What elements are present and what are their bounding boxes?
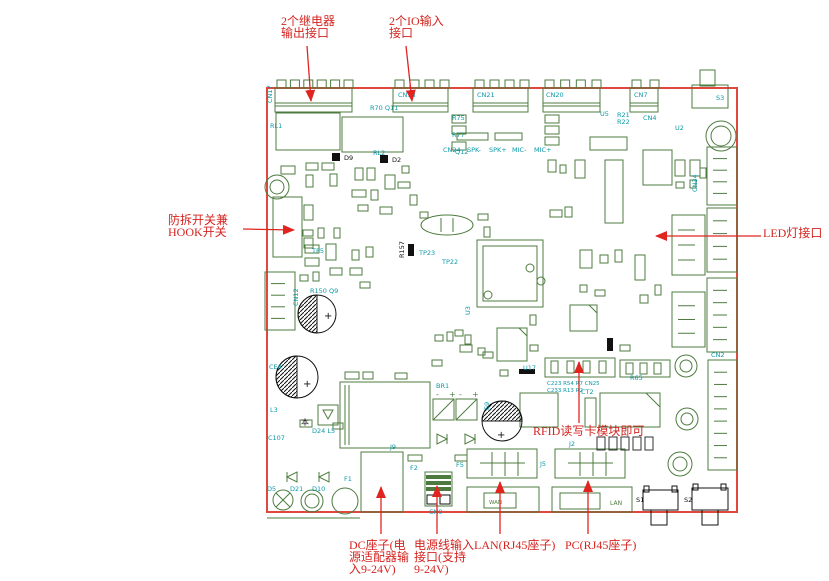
ref-designator: D9 (344, 154, 353, 162)
ref-designator: CN7 (634, 91, 648, 99)
passive-component (478, 214, 488, 220)
passive-component (306, 163, 318, 170)
passive-component (318, 228, 324, 238)
switch-s1 (643, 486, 678, 525)
passive-component (432, 360, 442, 366)
callout-text: PC(RJ45座子) (565, 537, 636, 552)
ref-designator: R157 (398, 241, 406, 258)
ref-designator: RL2 (373, 149, 385, 157)
callout-text: LED灯接口 (763, 225, 822, 240)
pin-connector (707, 147, 737, 205)
callout-text: 防拆开关兼HOOK开关 (168, 212, 228, 239)
passive-component (548, 160, 556, 172)
relay-rl2 (342, 117, 403, 152)
ref-designator: CN20 (546, 91, 564, 99)
passive-component (367, 168, 375, 180)
ref-designator: CN17 (266, 85, 274, 103)
passive-component (402, 166, 409, 173)
passive-component (352, 250, 359, 260)
ref-designator: J2 (568, 440, 575, 448)
passive-component (550, 210, 562, 217)
passive-component (643, 150, 672, 185)
svg-text:+: + (324, 311, 332, 322)
passive-component (560, 165, 566, 173)
ref-designator: R22 (617, 118, 630, 126)
passive-component (395, 373, 407, 379)
ref-designator: D21 (290, 485, 303, 493)
passive-component (675, 160, 685, 176)
ref-designator: RL1 (270, 122, 282, 130)
ref-designator: J9 (389, 443, 396, 451)
passive-component (545, 126, 559, 134)
passive-component (455, 330, 463, 336)
passive-component (330, 174, 337, 186)
passive-component (358, 205, 368, 211)
ref-designator: CN18 (398, 91, 416, 99)
passive-component (326, 244, 336, 260)
ref-designator: U3 (464, 306, 472, 315)
passive-component (398, 182, 410, 188)
passive-component (609, 437, 617, 450)
ref-designator: LAN (610, 500, 622, 507)
passive-component (303, 230, 313, 236)
callout-arrow (307, 46, 311, 101)
side-connectors (265, 147, 737, 470)
ref-designator: E9 (483, 402, 491, 410)
passive-component (355, 168, 363, 180)
ref-designator: F5 (456, 461, 464, 469)
ref-designator: C223 R54 R7 CN25 (547, 381, 600, 387)
ref-designator: CN2 (711, 351, 725, 359)
passive-component (580, 285, 587, 292)
ref-designator: R65 (630, 374, 643, 382)
passive-component (322, 163, 334, 170)
ref-designator: MIC- (512, 146, 527, 154)
ref-designator: L3 (270, 406, 278, 414)
ref-designator: U5 (600, 110, 609, 118)
ref-designator: D2 (392, 156, 401, 164)
passive-component (313, 272, 319, 281)
callout-text: RFID读写卡模块即可 (533, 424, 644, 438)
passive-component (580, 250, 592, 268)
callout-text: 2个继电器输出接口 (281, 14, 335, 40)
passive-component (330, 268, 342, 275)
ref-designator: D24 L5 (312, 427, 335, 435)
ref-designator: F1 (344, 475, 352, 483)
passive-component (408, 455, 422, 461)
ref-designator: MIC+ (534, 146, 552, 154)
callout-text: DC座子(电源适配器输入9-24V) (349, 537, 409, 576)
passive-component (385, 175, 395, 189)
passive-component (640, 295, 648, 303)
ref-designator: CT2 (581, 388, 594, 396)
ref-designator: R75 (452, 114, 465, 122)
ref-designator: C107 (268, 434, 285, 442)
ref-designator: TP23 (418, 249, 435, 257)
passive-component (565, 207, 572, 217)
passive-component (595, 290, 605, 296)
black-components: + + + (276, 153, 728, 525)
passive-component (363, 372, 373, 379)
ref-designator: CE4 (269, 363, 282, 371)
pin-connector (708, 360, 737, 470)
passive-component (500, 370, 508, 376)
passive-component (615, 250, 622, 262)
passive-component (334, 228, 340, 238)
passive-component (690, 160, 700, 176)
passive-component (545, 115, 559, 123)
pin-connector (672, 215, 705, 275)
relay-rl1 (276, 113, 340, 150)
passive-component (597, 437, 605, 450)
ref-designator: BR1 (436, 382, 449, 390)
ref-designator: CN4 (643, 114, 657, 122)
pcb-drawing: + + + -+-+ CN17CN18CN21CN20CN7S3R70 Q11R… (0, 0, 829, 581)
ref-designator: TP22 (441, 258, 458, 266)
callout-power-wire-input: 电源线输入接口(支持9-24V) (414, 486, 474, 576)
callout-pc-rj45: PC(RJ45座子) (565, 481, 636, 552)
passive-component (420, 212, 428, 218)
passive-component (352, 190, 366, 197)
passive-component (410, 195, 417, 205)
passive-component (495, 133, 522, 140)
passive-component (620, 345, 630, 351)
svg-text:+: + (497, 430, 505, 441)
pin-connector (265, 272, 295, 330)
pin-connector (707, 208, 737, 272)
callout-tamper-hook-switch: 防拆开关兼HOOK开关 (168, 212, 294, 239)
pcb-annotation-diagram: + + + -+-+ CN17CN18CN21CN20CN7S3R70 Q11R… (0, 0, 829, 581)
ref-designator: S3 (716, 94, 724, 102)
polarity-mark: + (449, 390, 456, 399)
top-terminal-blocks (275, 80, 659, 112)
dc-jack-j9 (361, 452, 403, 512)
callout-text: 电源线输入接口(支持9-24V) (414, 537, 474, 576)
power-terminal-cn9 (425, 472, 452, 506)
ref-designator: J5 (539, 460, 546, 468)
pin-connector (672, 292, 705, 347)
polarity-mark: - (459, 390, 462, 399)
passive-component (281, 166, 295, 174)
passive-component (655, 285, 661, 295)
ref-designator: CN12 (292, 288, 300, 306)
passive-component (676, 182, 684, 188)
power-module (340, 382, 430, 448)
callout-text: 2个IO输入接口 (389, 13, 444, 40)
passive-component (575, 160, 585, 178)
passive-component (621, 437, 629, 450)
tamper-switch-body (273, 197, 302, 257)
ref-designator: C233 R13 R2 (547, 388, 583, 394)
passive-component (545, 137, 559, 145)
ref-designator: F2 (410, 464, 418, 472)
ref-designator: R150 Q9 (310, 287, 338, 295)
passive-component (380, 207, 392, 214)
ref-designator: CN34 (691, 174, 699, 192)
passive-component (447, 332, 453, 341)
ref-designator: SPK+ (489, 146, 507, 154)
ref-designator: CN9 (429, 508, 443, 516)
passive-component (633, 437, 641, 450)
ref-designator: S2 (684, 496, 692, 504)
passive-component (360, 282, 370, 288)
passive-component (305, 258, 319, 266)
svg-text:+: + (303, 379, 311, 390)
passive-component (371, 190, 378, 200)
passive-component (530, 315, 536, 325)
passive-component (306, 175, 313, 187)
passive-component (460, 345, 472, 352)
passive-component (345, 372, 359, 379)
passive-component (605, 160, 623, 223)
passive-component (465, 335, 471, 344)
passive-component (484, 227, 490, 237)
callout-led-port: LED灯接口 (656, 225, 822, 240)
callout-arrow (243, 229, 294, 230)
ref-designator: TP5 (311, 247, 324, 255)
ref-designator: U17 (523, 364, 536, 372)
ref-designator: SPK- (467, 146, 482, 154)
passive-component (645, 437, 653, 450)
ref-designator: U2 (675, 124, 684, 132)
ref-designator: D5 (267, 485, 276, 493)
passive-component (435, 335, 443, 341)
ref-designator: CN24 (443, 146, 461, 154)
passive-component (350, 268, 362, 275)
passive-component (366, 247, 373, 257)
polarity-mark: - (436, 390, 439, 399)
ref-designator: S1 (636, 496, 644, 504)
ref-designator: R77 (452, 131, 465, 139)
polarity-mark: + (472, 390, 479, 399)
pin-connector (707, 278, 737, 352)
passive-component (300, 275, 308, 281)
fuse-f1 (332, 488, 358, 514)
crystal-y1 (421, 215, 473, 235)
passive-component (600, 255, 608, 263)
main-chip-u3 (477, 240, 543, 307)
ref-designator: R70 Q11 (370, 104, 398, 112)
ref-designator: 本 (301, 417, 309, 427)
battery-polarity-marks: -+-+ (436, 390, 479, 399)
ref-designator: CN21 (477, 91, 495, 99)
switch-s2 (692, 484, 728, 525)
passive-component (590, 137, 627, 150)
ref-designator: D10 (312, 485, 325, 493)
callout-text: LAN(RJ45座子) (474, 537, 555, 552)
top-terminal-block (275, 80, 353, 112)
passive-component (700, 168, 706, 178)
passive-component (530, 345, 538, 351)
passive-component (635, 255, 645, 280)
